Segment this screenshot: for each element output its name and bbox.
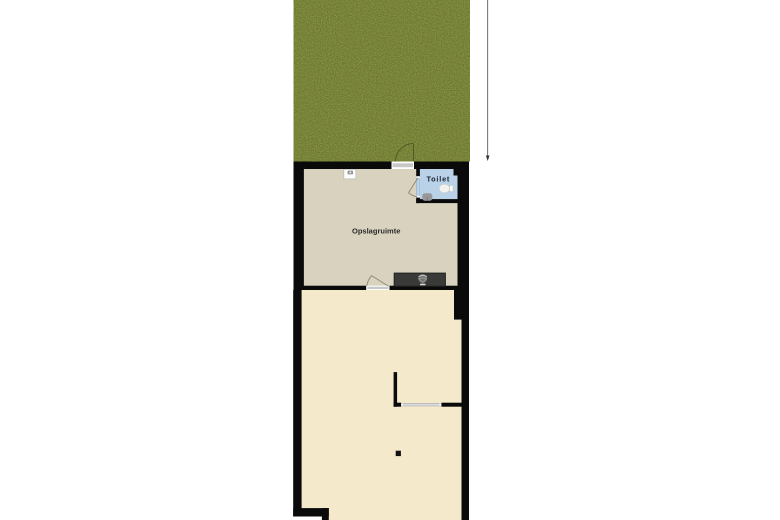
svg-text:Opslagruimte: Opslagruimte: [352, 226, 400, 235]
svg-text:Toilet: Toilet: [426, 175, 450, 184]
